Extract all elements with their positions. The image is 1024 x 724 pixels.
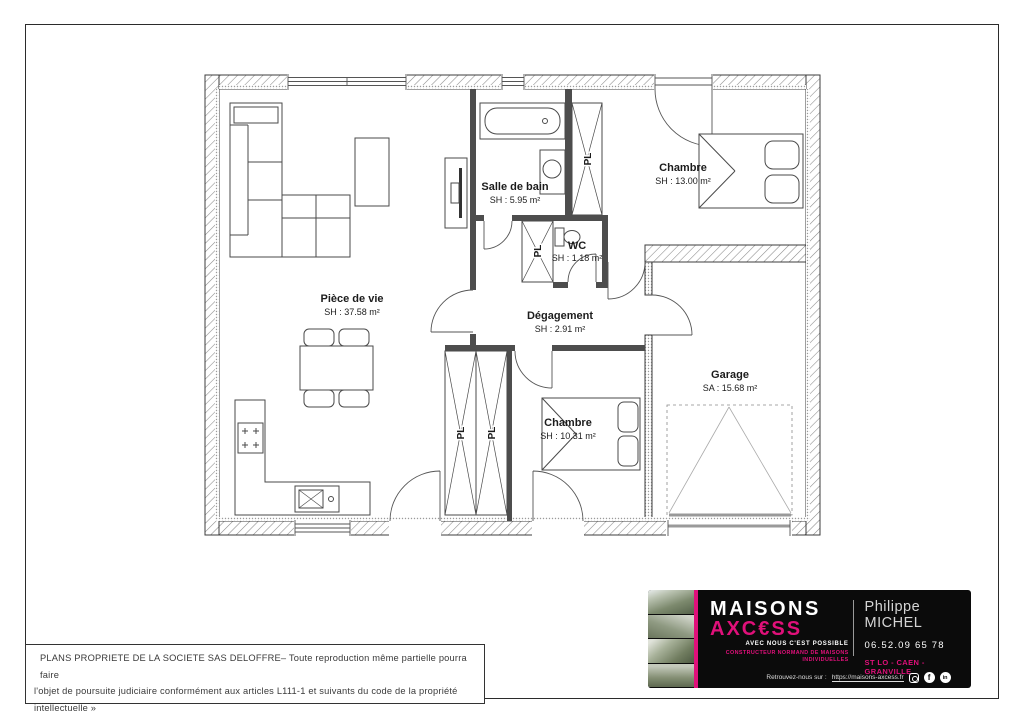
room-label-chambre2: Chambre [544,417,592,429]
room-label-wc: WC [568,240,586,252]
room-area-piece-de-vie: SH : 37.58 m² [324,307,380,317]
bathtub [480,103,565,139]
builder-business-card: MAISONS AXC€SS AVEC NOUS C'EST POSSIBLE … [648,590,971,688]
window-bath [501,74,525,90]
coffee-table [355,138,389,206]
linkedin-glyph: in [943,675,948,681]
garage-door-opening [666,520,792,536]
house-photo [648,639,694,664]
house-photo [648,664,694,689]
contact-name: Philippe MICHEL [865,599,971,631]
brand-descriptor-line1: CONSTRUCTEUR NORMAND DE MAISONS [710,650,849,657]
instagram-icon [909,673,919,683]
door-hall-chambre1 [608,262,645,299]
door-living-back [389,520,441,536]
house-photo-strip [648,590,694,688]
furniture [230,103,803,515]
door-living-hall [431,290,473,332]
house-photo [648,590,694,615]
room-label-piece-de-vie: Pièce de vie [321,293,384,305]
card-footer: Retrouvez-nous sur : https://maisons-axc… [752,672,965,683]
door-bath [484,221,512,249]
garage-door-symbol [667,405,792,515]
door-chambre2-out [532,520,584,536]
brand-tagline: AVEC NOUS C'EST POSSIBLE [710,641,853,647]
brand-descriptor: CONSTRUCTEUR NORMAND DE MAISONS INDIVIDU… [710,650,853,664]
card-content: MAISONS AXC€SS AVEC NOUS C'EST POSSIBLE … [698,590,971,688]
brand-name-bottom: AXC€SS [710,619,853,640]
window-chambre1 [654,74,713,90]
legal-notice: PLANS PROPRIETE DE LA SOCIETE SAS DELOFF… [25,644,485,704]
closet-label: PL [533,245,544,258]
brand-name-top: MAISONS [710,599,853,619]
contact-phone: 06.52.09 65 78 [865,640,971,651]
room-area-garage: SA : 15.68 m² [703,383,758,393]
brand-descriptor-line2: INDIVIDUELLES [710,657,849,664]
legal-line-3: intellectuelle » [34,700,478,717]
kitchen-sink [295,486,339,512]
closet-hall-2: PL [476,351,507,515]
legal-line-2: l'objet de poursuite judiciaire conformé… [34,683,478,700]
plan-page: PL PL PL PL Pièce de vie SH : 37.58 m² [0,0,1024,724]
room-label-salle-de-bain: Salle de bain [481,181,549,193]
room-area-chambre1: SH : 13.00 m² [655,176,711,186]
closet-label: PL [487,427,498,440]
bed-chambre1 [699,134,803,208]
closet-hall-1: PL [445,351,476,515]
room-label-degagement: Dégagement [527,310,593,322]
facebook-icon: f [924,672,935,683]
kitchen-counter [235,400,370,515]
room-label-garage: Garage [711,369,749,381]
door-hall-garage [652,295,692,335]
facebook-glyph: f [928,673,931,682]
closet-wc: PL [522,221,553,282]
dining-table [300,329,373,407]
closet-chambre1: PL [572,103,602,215]
room-area-salle-de-bain: SH : 5.95 m² [490,195,541,205]
floor-plan: PL PL PL PL Pièce de vie SH : 37.58 m² [200,70,825,540]
footer-prefix: Retrouvez-nous sur : [766,674,826,681]
house-photo [648,615,694,640]
cooktop [238,423,263,453]
tv-unit [445,158,467,228]
closet-label: PL [583,153,594,166]
website-url: https://maisons-axcess.fr [832,674,904,682]
closet-label: PL [456,427,467,440]
room-area-degagement: SH : 2.91 m² [535,324,586,334]
legal-line-1: PLANS PROPRIETE DE LA SOCIETE SAS DELOFF… [34,650,478,683]
sofa [230,103,350,257]
door-hall-chambre2 [515,351,552,388]
room-label-chambre1: Chambre [659,162,707,174]
linkedin-icon: in [940,672,951,683]
room-area-wc: SH : 1.18 m² [552,253,603,263]
room-area-chambre2: SH : 10.31 m² [540,431,596,441]
